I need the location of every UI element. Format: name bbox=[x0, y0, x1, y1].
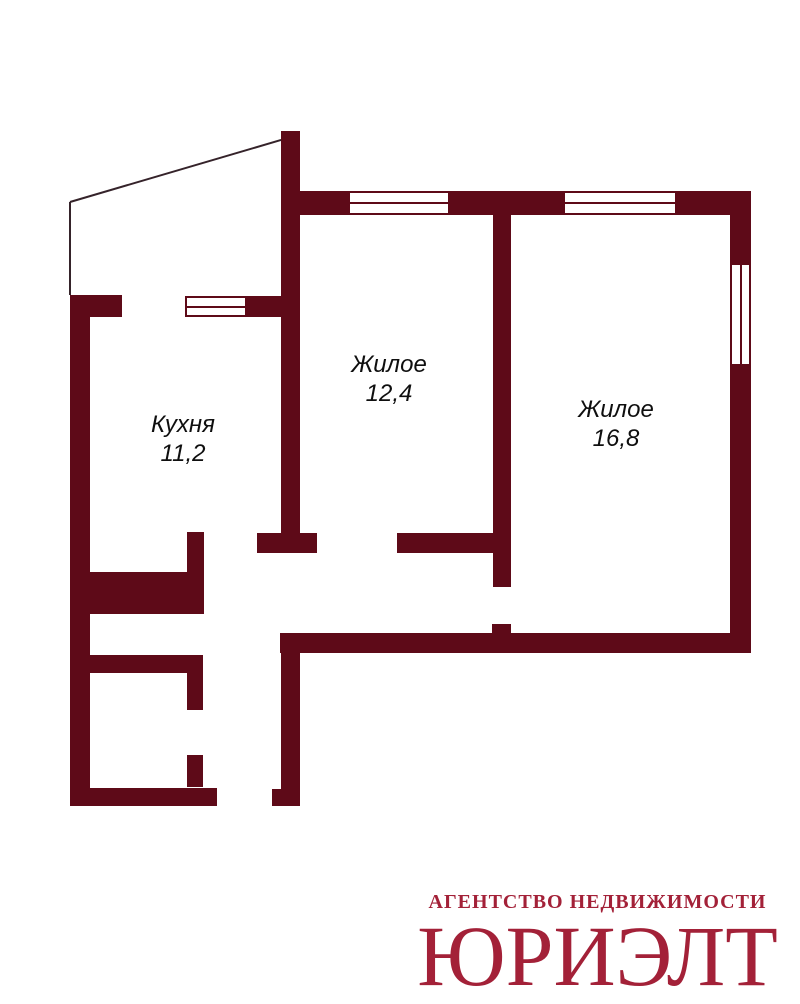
wall-segment bbox=[281, 131, 300, 533]
wall-segment bbox=[300, 191, 348, 215]
room-label-kitchen: Кухня 11,2 bbox=[98, 410, 268, 468]
room-label-living-16-8: Жилое 16,8 bbox=[531, 395, 701, 453]
window-mid-line bbox=[349, 202, 449, 204]
wall-segment bbox=[730, 191, 751, 263]
window-symbol bbox=[185, 296, 247, 317]
wall-segment bbox=[450, 191, 563, 215]
window-mid-line bbox=[564, 202, 676, 204]
window-symbol bbox=[348, 191, 450, 215]
wall-segment bbox=[187, 755, 203, 787]
window-symbol bbox=[563, 191, 677, 215]
window-mid-line bbox=[740, 264, 742, 365]
wall-segment bbox=[257, 533, 317, 553]
agency-logo: АГЕНТСТВО НЕДВИЖИМОСТИ ЮРИЭЛТ bbox=[400, 890, 795, 998]
wall-segment bbox=[70, 295, 90, 806]
wall-segment bbox=[493, 215, 511, 587]
wall-segment bbox=[281, 653, 300, 806]
floorplan-canvas: Жилое 12,4 Жилое 16,8 Кухня 11,2 АГЕНТСТ… bbox=[0, 0, 800, 1000]
room-label-living-12-4: Жилое 12,4 bbox=[304, 350, 474, 408]
wall-segment bbox=[70, 788, 217, 806]
room-name: Жилое bbox=[304, 350, 474, 379]
floorplan-page: { "colors": { "background": "#ffffff", "… bbox=[0, 0, 800, 1000]
room-name: Кухня bbox=[98, 410, 268, 439]
wall-segment bbox=[247, 296, 281, 317]
wall-segment bbox=[88, 572, 204, 614]
wall-segment bbox=[280, 633, 750, 653]
room-area: 12,4 bbox=[304, 379, 474, 408]
wall-segment bbox=[730, 366, 751, 653]
agency-brand-name: ЮРИЭЛТ bbox=[400, 914, 795, 998]
wall-segment bbox=[272, 789, 300, 806]
balcony-outline-line bbox=[70, 139, 282, 203]
room-name: Жилое bbox=[531, 395, 701, 424]
wall-segment bbox=[397, 533, 493, 553]
window-mid-line bbox=[186, 306, 246, 308]
window-symbol bbox=[730, 263, 751, 366]
balcony-outline-line bbox=[69, 202, 71, 295]
room-area: 11,2 bbox=[98, 439, 268, 468]
wall-segment bbox=[70, 295, 122, 317]
wall-segment bbox=[187, 532, 204, 572]
wall-segment bbox=[70, 655, 203, 673]
wall-segment bbox=[677, 191, 730, 215]
wall-segment bbox=[187, 673, 203, 710]
wall-segment bbox=[492, 624, 511, 633]
room-area: 16,8 bbox=[531, 424, 701, 453]
